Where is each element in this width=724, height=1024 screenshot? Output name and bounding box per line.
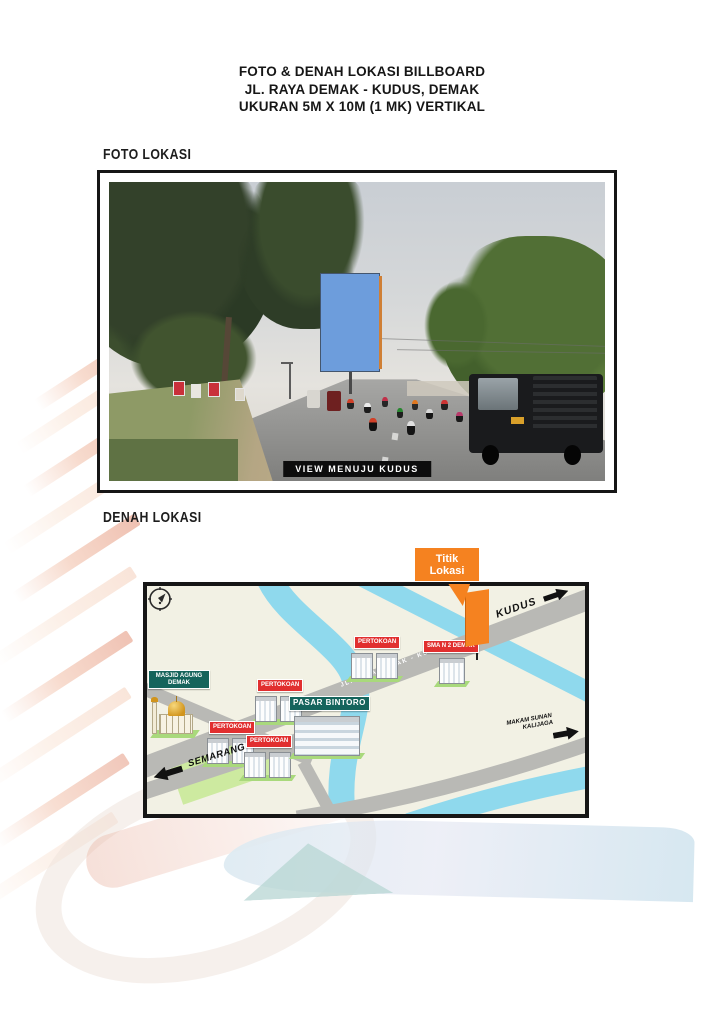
callout-line-1: Titik <box>415 553 479 565</box>
photo-frame: VIEW MENUJU KUDUS <box>97 170 617 493</box>
location-photo: VIEW MENUJU KUDUS <box>109 182 605 481</box>
roadside-banner <box>191 384 201 398</box>
truck-windshield <box>478 378 518 411</box>
building <box>351 653 373 679</box>
truck-bed <box>533 376 597 432</box>
sma-building <box>439 658 465 684</box>
roadside-banner <box>235 388 245 401</box>
truck-wheel <box>564 445 581 465</box>
motorcycle <box>407 421 415 434</box>
motorcycle <box>397 408 403 418</box>
building <box>244 752 266 778</box>
label-masjid-agung-demak: MASJID AGUNG DEMAK <box>148 670 210 689</box>
motorcycle <box>369 418 377 431</box>
motorcycle <box>426 409 432 419</box>
building <box>376 653 398 679</box>
street-lamp-pole <box>289 363 291 399</box>
motorcycle <box>382 397 388 407</box>
car <box>327 391 341 410</box>
pertokoan-4-buildings <box>244 752 291 778</box>
mosque-minaret-tip <box>151 697 158 702</box>
motorcycle <box>347 399 353 409</box>
mosque-building <box>151 692 199 738</box>
motorcycle <box>412 400 418 410</box>
map-canvas: JL. RAYA DEMAK - KUDUS KUDUS SEMARANG MA… <box>147 586 585 814</box>
billboard-placeholder <box>320 273 380 372</box>
building <box>439 658 465 684</box>
building <box>294 716 360 756</box>
pasar-bintoro-building <box>294 716 360 756</box>
roadside-banner <box>173 381 185 396</box>
compass-icon <box>147 586 173 612</box>
map-billboard-marker <box>465 589 489 647</box>
grass-strip <box>109 439 238 481</box>
car <box>307 390 320 408</box>
pickup-truck <box>469 361 603 463</box>
motorcycle <box>456 412 462 422</box>
label-pertokoan-1: PERTOKOAN <box>354 636 400 649</box>
building <box>269 752 291 778</box>
label-pertokoan-4: PERTOKOAN <box>246 735 292 748</box>
motorcycle <box>364 403 370 413</box>
billboard-pole <box>349 372 352 394</box>
roadside-banner <box>208 382 219 397</box>
titik-lokasi-callout: Titik Lokasi <box>415 548 479 581</box>
masjid-line-2: DEMAK <box>152 680 206 687</box>
mosque-dome <box>168 701 185 716</box>
title-line-2: JL. RAYA DEMAK - KUDUS, DEMAK <box>0 81 724 99</box>
masjid-line-1: MASJID AGUNG <box>152 673 206 680</box>
mosque-spike <box>176 696 177 702</box>
truck-wheel <box>482 445 499 465</box>
photo-caption: VIEW MENUJU KUDUS <box>283 461 431 477</box>
callout-line-2: Lokasi <box>415 565 479 577</box>
mosque-minaret <box>152 702 157 734</box>
mosque-body <box>159 714 193 734</box>
label-pertokoan-2: PERTOKOAN <box>257 679 303 692</box>
title-line-3: UKURAN 5M X 10M (1 MK) VERTIKAL <box>0 98 724 116</box>
map-frame: Titik Lokasi <box>143 582 589 818</box>
pertokoan-1-buildings <box>351 653 398 679</box>
map-section-heading: DENAH LOKASI <box>103 509 202 526</box>
lane-marking <box>391 433 398 441</box>
building <box>255 696 277 722</box>
label-pasar-bintoro: PASAR BINTORO <box>289 696 370 711</box>
motorcycle <box>441 400 447 410</box>
truck-reflector <box>511 417 523 424</box>
photo-section-heading: FOTO LOKASI <box>103 146 191 163</box>
document-title: FOTO & DENAH LOKASI BILLBOARD JL. RAYA D… <box>0 63 724 116</box>
label-pertokoan-3: PERTOKOAN <box>209 721 255 734</box>
title-line-1: FOTO & DENAH LOKASI BILLBOARD <box>0 63 724 81</box>
